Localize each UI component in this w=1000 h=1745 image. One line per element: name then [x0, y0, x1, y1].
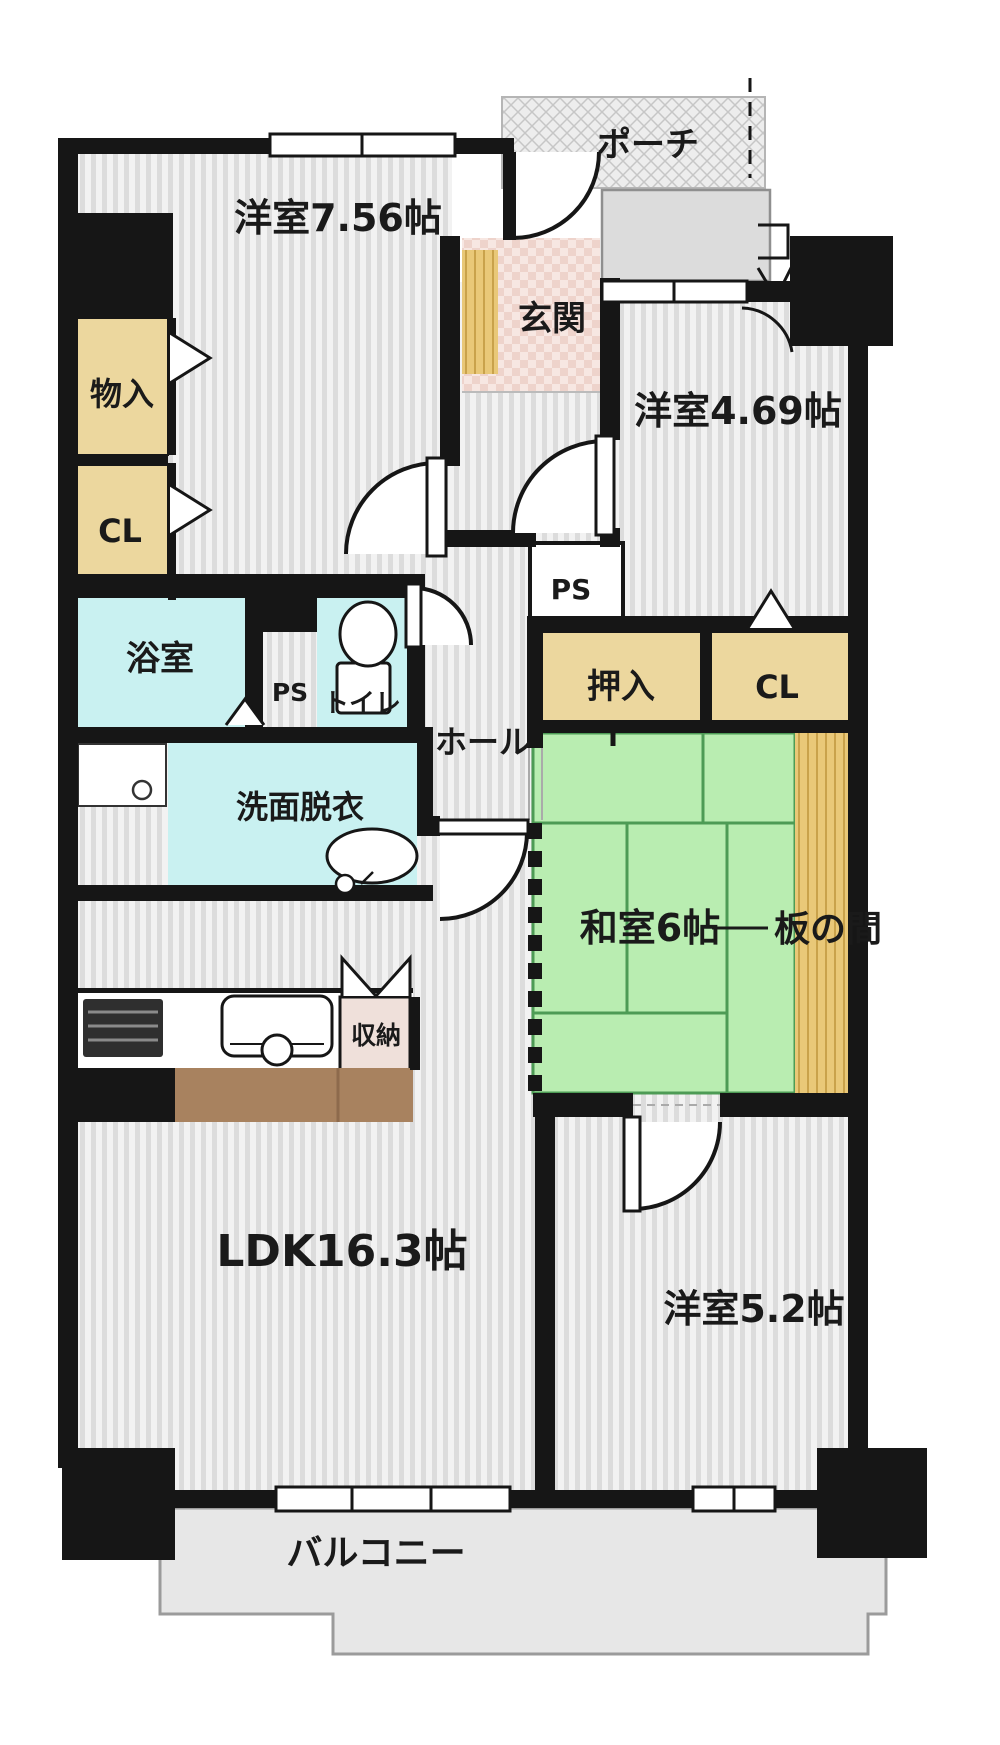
label-hall: ホール	[435, 723, 531, 761]
washer-pan-drain	[133, 781, 151, 799]
window-room-west3-balcony	[693, 1487, 775, 1511]
label-oshiire: 押入	[587, 667, 655, 707]
pillar-top-left	[62, 213, 173, 318]
washer-pan	[78, 744, 166, 806]
stove-icon	[83, 999, 163, 1057]
pillar-bottom-left	[62, 1448, 175, 1560]
label-porch: ポーチ	[597, 125, 699, 165]
kitchen-counter-front	[175, 1068, 413, 1122]
label-bath: 浴室	[126, 639, 194, 679]
label-washroom: 洗面脱衣	[236, 788, 364, 826]
window-room-west2	[602, 281, 747, 302]
label-room-west3: 洋室5.2帖	[663, 1287, 844, 1331]
porch-alcove-box	[602, 190, 770, 281]
label-room-west2: 洋室4.69帖	[634, 389, 842, 433]
entrance-mat	[462, 250, 498, 374]
label-wood-floor: 板の間	[774, 909, 882, 950]
label-storage-left: 物入	[90, 375, 154, 413]
pillar-bottom-right	[817, 1448, 927, 1558]
label-balcony: バルコニー	[286, 1533, 465, 1574]
label-room-tatami: 和室6帖	[580, 906, 720, 950]
kitchen-sink-icon	[222, 996, 332, 1065]
window-room-west1	[270, 134, 455, 156]
label-closet-left: CL	[98, 512, 142, 550]
label-closet-right: CL	[755, 668, 799, 706]
floor-plan: 洋室7.56帖 洋室4.69帖 和室6帖 板の間 洋室5.2帖 LDK16.3帖…	[0, 0, 1000, 1745]
floor-plan-page: 洋室7.56帖 洋室4.69帖 和室6帖 板の間 洋室5.2帖 LDK16.3帖…	[0, 0, 1000, 1745]
pillar-kitchen	[62, 1068, 175, 1122]
label-toilet: トイレ	[323, 689, 401, 719]
label-ps-wet: PS	[272, 678, 308, 707]
balcony-area	[160, 1508, 886, 1654]
label-kitchen-storage: 収納	[351, 1021, 401, 1050]
label-room-west1: 洋室7.56帖	[234, 196, 442, 240]
pillar-top-right	[790, 236, 893, 346]
label-entrance: 玄関	[518, 299, 586, 339]
window-ldk-balcony	[276, 1487, 510, 1511]
label-ps-hall: PS	[551, 573, 592, 606]
label-ldk: LDK16.3帖	[216, 1226, 467, 1277]
